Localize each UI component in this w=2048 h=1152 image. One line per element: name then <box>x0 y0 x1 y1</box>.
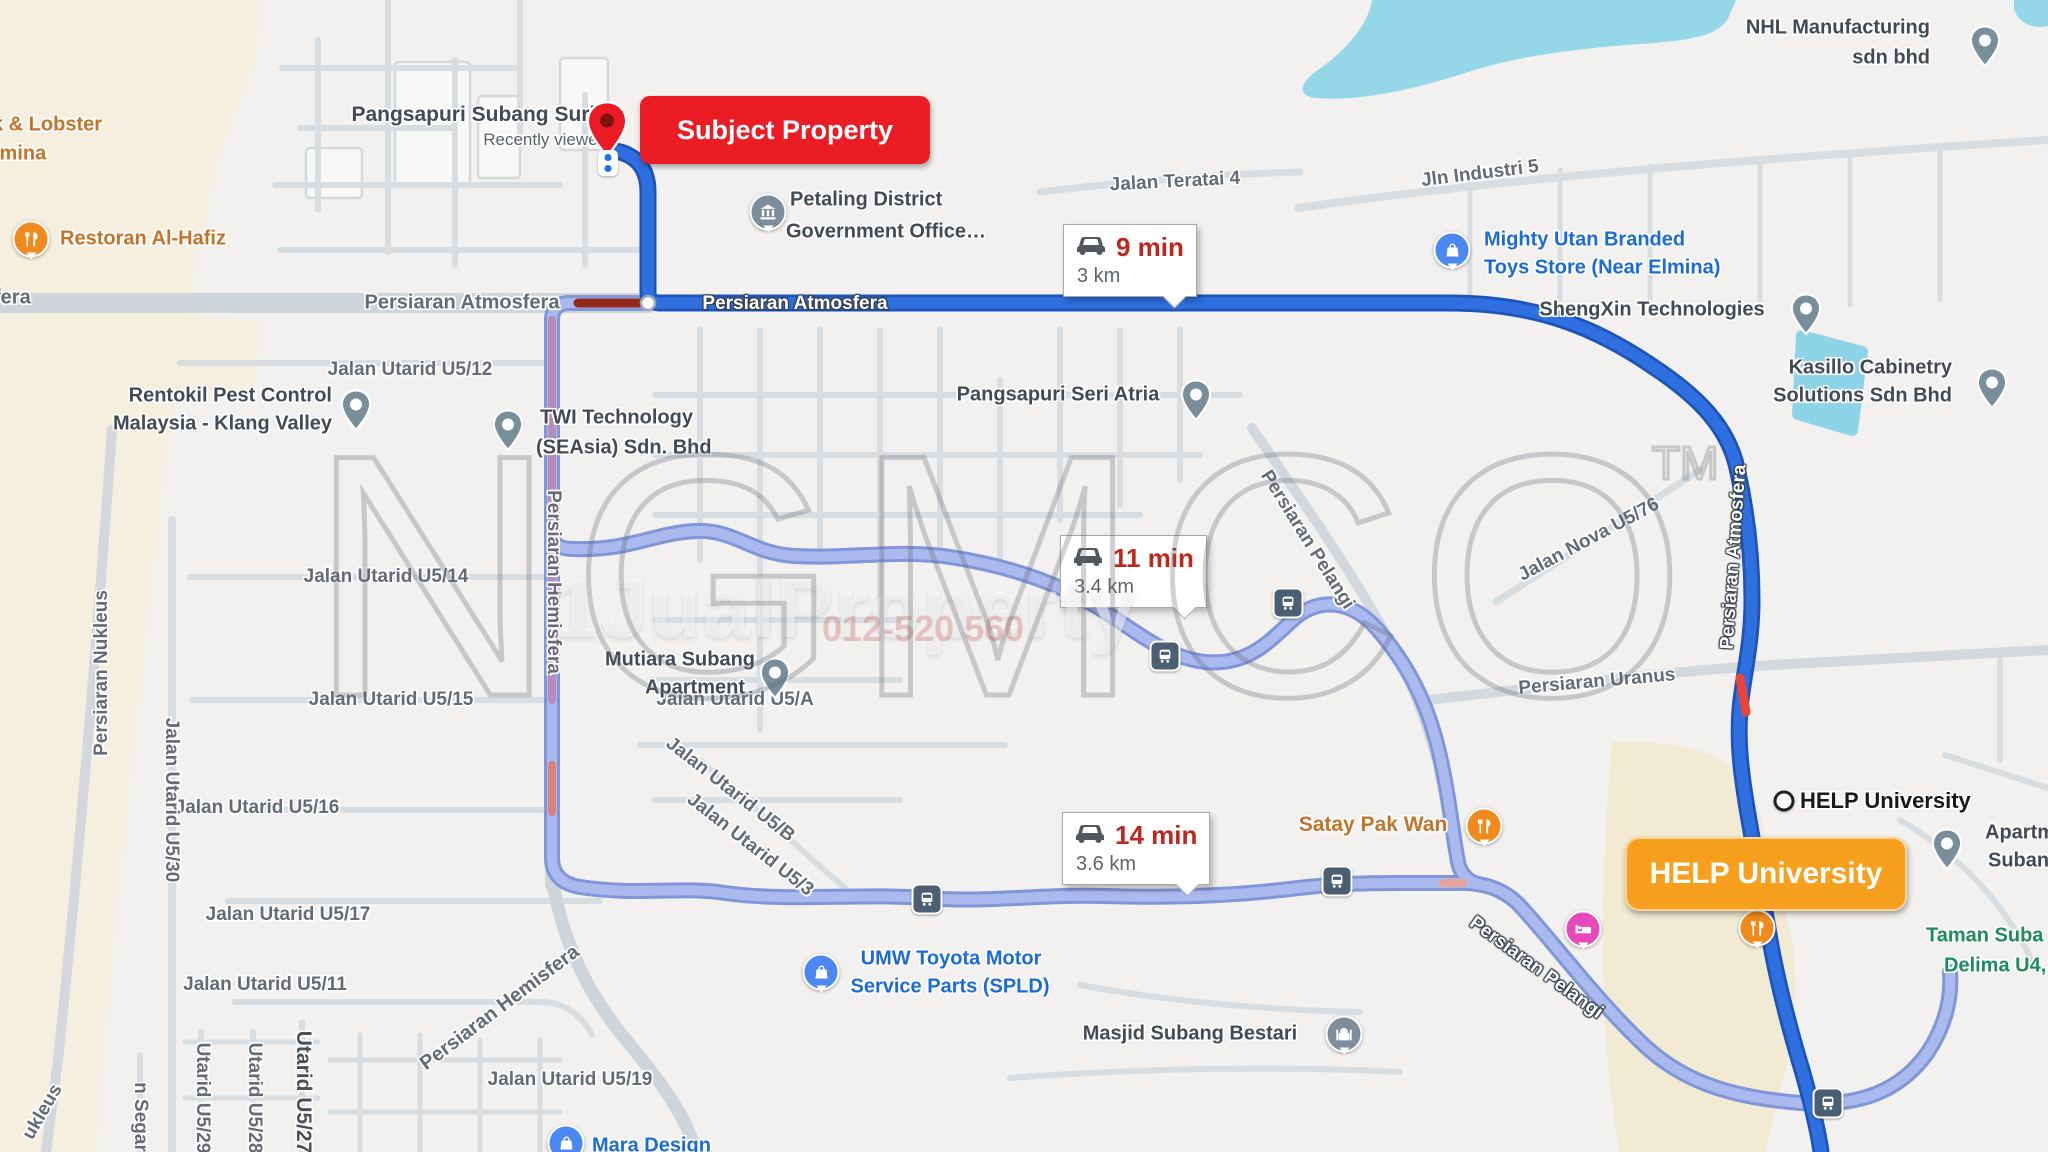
poi-label-mighty-line1[interactable]: Mighty Utan Branded <box>1484 229 1685 252</box>
twi-pin-icon[interactable] <box>491 408 525 452</box>
road-label-u5-16: Jalan Utarid U5/16 <box>175 797 340 819</box>
poi-label-rentokil-line1[interactable]: Rentokil Pest Control <box>129 385 332 408</box>
poi-label-elmina-cut[interactable]: lmina <box>0 143 46 166</box>
route-distance: 3.4 km <box>1074 576 1194 599</box>
auto-parts-store-icon[interactable] <box>803 954 840 991</box>
poi-label-masjid[interactable]: Masjid Subang Bestari <box>1083 1023 1298 1046</box>
road-label-atmosfera-on-route: Persiaran Atmosfera <box>702 293 887 315</box>
route-junction-dot <box>641 296 655 310</box>
poi-label-apart-line1[interactable]: Apartme <box>1985 822 2048 845</box>
poi-label-petaling-line2[interactable]: Government Office… <box>786 221 986 244</box>
route-badge-9min[interactable]: 9 min 3 km <box>1063 224 1197 297</box>
poi-label-rentokil-line2[interactable]: Malaysia - Klang Valley <box>113 413 332 436</box>
mutiara-pin-icon[interactable] <box>758 656 792 700</box>
route-duration: 9 min <box>1116 232 1184 263</box>
road-label-u5-12: Jalan Utarid U5/12 <box>328 359 493 381</box>
transit-stop-icon-1[interactable] <box>1150 641 1181 672</box>
poi-label-umw-line1[interactable]: UMW Toyota Motor <box>861 948 1042 971</box>
road-label-hemisfera-on-route: Persiaran Hemisfera <box>542 490 564 674</box>
poi-label-help-university[interactable]: HELP University <box>1800 788 1971 814</box>
poi-label-taman-line1[interactable]: Taman Suba <box>1926 925 2043 948</box>
road-label-u5-15: Jalan Utarid U5/15 <box>309 689 474 711</box>
poi-label-pangsapuri-subang-suria[interactable]: Pangsapuri Subang Suria <box>351 103 607 127</box>
poi-label-mutiara-line2[interactable]: Apartment <box>645 677 745 700</box>
origin-waypoint-icon <box>598 150 618 176</box>
route-duration: 14 min <box>1115 820 1197 851</box>
poi-label-apart-line2[interactable]: Subang <box>1988 850 2048 873</box>
traffic-incident-segment <box>1740 678 1746 712</box>
road-label-u5-27: Utarid U5/27 <box>291 1031 315 1152</box>
poi-label-kasillo-line2[interactable]: Solutions Sdn Bhd <box>1773 385 1952 408</box>
poi-label-restoran-al-hafiz[interactable]: Restoran Al-Hafiz <box>60 228 226 251</box>
road-label-atmosfera-west: Persiaran Atmosfera <box>365 292 560 315</box>
route-duration: 11 min <box>1113 543 1194 574</box>
subject-property-text: Subject Property <box>677 115 893 146</box>
road-label-nukleus: Persiaran Nukleus <box>91 590 113 756</box>
poi-label-taman-line2[interactable]: Delima U4, <box>1944 955 2046 978</box>
subject-property-label[interactable]: Subject Property <box>640 96 930 164</box>
restaurant-icon-satay[interactable] <box>1466 808 1503 845</box>
car-icon <box>1072 545 1104 572</box>
help-university-text: HELP University <box>1650 857 1883 891</box>
poi-label-mara-design[interactable]: Mara Design <box>592 1135 711 1152</box>
shengxin-pin-icon[interactable] <box>1789 292 1823 336</box>
rentokil-pin-icon[interactable] <box>339 388 373 432</box>
map-canvas[interactable]: Persiaran Atmosfera Persiaran Atmosfera … <box>0 0 2048 1152</box>
apartment-subang-pin-icon[interactable] <box>1930 827 1964 871</box>
poi-label-twi-line1[interactable]: TWI Technology <box>540 407 693 430</box>
route-distance: 3 km <box>1077 265 1184 288</box>
road-label-fera-cut: fera <box>0 287 31 310</box>
kasillo-pin-icon[interactable] <box>1975 366 2009 410</box>
hotel-icon[interactable] <box>1565 911 1602 948</box>
poi-label-satay-pak-wan[interactable]: Satay Pak Wan <box>1299 813 1448 837</box>
poi-label-umw-line2[interactable]: Service Parts (SPLD) <box>851 976 1050 999</box>
poi-label-mutiara-line1[interactable]: Mutiara Subang <box>605 649 755 672</box>
destination-circle-icon[interactable] <box>1774 791 1795 812</box>
car-icon <box>1075 234 1107 261</box>
seri-atria-pin-icon[interactable] <box>1179 378 1213 422</box>
road-label-u5-19: Jalan Utarid U5/19 <box>488 1069 653 1091</box>
route-distance: 3.6 km <box>1076 853 1197 876</box>
help-university-label[interactable]: HELP University <box>1625 837 1907 911</box>
road-label-u5-30: Jalan Utarid U5/30 <box>160 718 182 883</box>
poi-label-twi-line2[interactable]: (SEAsia) Sdn. Bhd <box>536 437 712 460</box>
poi-label-petaling-line1[interactable]: Petaling District <box>790 189 942 212</box>
restaurant-icon-help-area[interactable] <box>1739 910 1776 947</box>
road-label-u5-14: Jalan Utarid U5/14 <box>304 566 469 588</box>
toy-store-icon[interactable] <box>1434 232 1471 269</box>
poi-label-kasillo-line1[interactable]: Kasillo Cabinetry <box>1789 357 1952 380</box>
transit-stop-icon-3[interactable] <box>912 884 943 915</box>
poi-label-mighty-line2[interactable]: Toys Store (Near Elmina) <box>1484 257 1720 280</box>
road-label-segar-cut: n Segar <box>129 1082 151 1152</box>
poi-label-seri-atria[interactable]: Pangsapuri Seri Atria <box>957 384 1160 407</box>
poi-label-shengxin[interactable]: ShengXin Technologies <box>1539 299 1764 322</box>
transit-stop-icon-5[interactable] <box>1813 1088 1844 1119</box>
nhl-pin-icon[interactable] <box>1968 24 2002 68</box>
route-badge-14min[interactable]: 14 min 3.6 km <box>1062 812 1210 885</box>
car-icon <box>1074 822 1106 849</box>
poi-label-lobster-cut[interactable]: k & Lobster <box>0 114 102 137</box>
mosque-icon[interactable] <box>1326 1016 1363 1053</box>
poi-label-nhl-line1[interactable]: NHL Manufacturing <box>1746 17 1930 40</box>
restaurant-icon-al-hafiz[interactable] <box>13 221 50 258</box>
road-label-u5-28: Utarid U5/28 <box>243 1043 265 1152</box>
road-label-u5-11: Jalan Utarid U5/11 <box>183 974 347 996</box>
government-office-icon[interactable] <box>750 194 787 231</box>
road-label-u5-29: Utarid U5/29 <box>191 1043 213 1152</box>
transit-stop-icon-4[interactable] <box>1322 866 1353 897</box>
road-label-u5-17: Jalan Utarid U5/17 <box>206 904 371 926</box>
transit-stop-icon-2[interactable] <box>1273 588 1304 619</box>
poi-label-nhl-line2[interactable]: sdn bhd <box>1852 47 1930 70</box>
route-badge-11min[interactable]: 11 min 3.4 km <box>1060 535 1207 608</box>
